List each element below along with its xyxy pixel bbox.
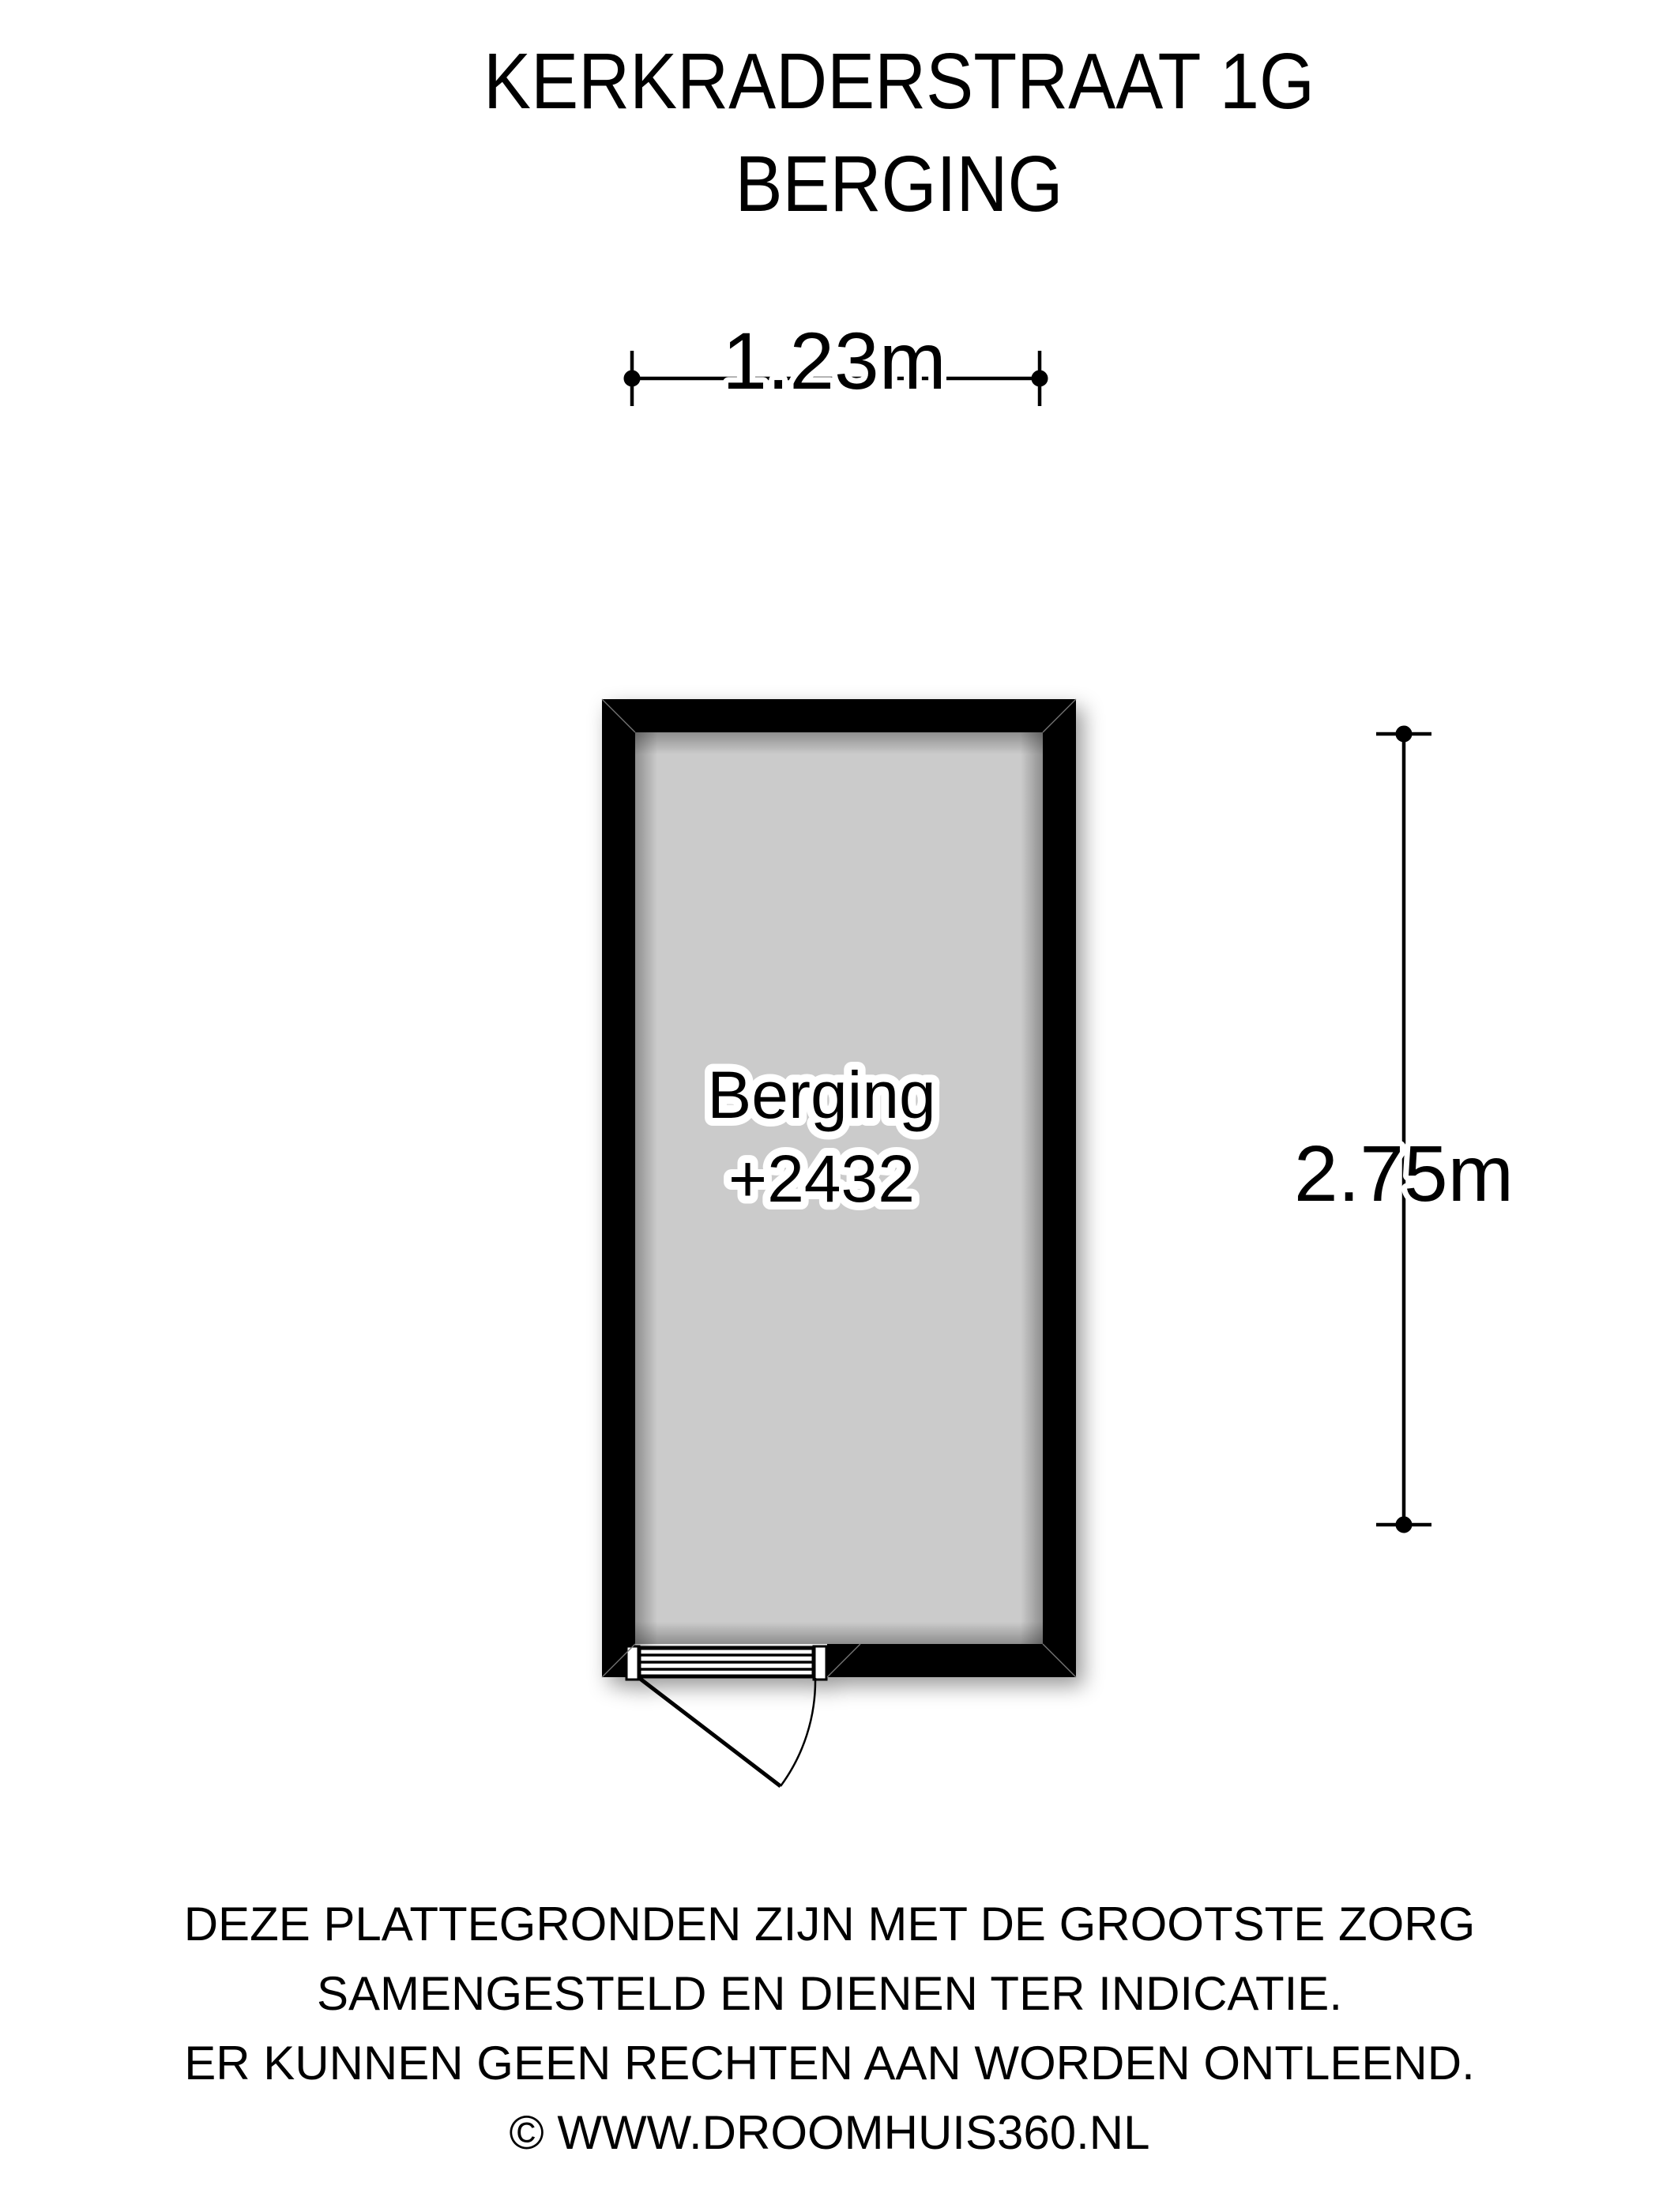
disclaimer-line: DEZE PLATTEGRONDEN ZIJN MET DE GROOTSTE …: [0, 1890, 1659, 1959]
dimension-endpoint-dot: [1396, 1517, 1412, 1533]
door-leaf: [639, 1678, 781, 1786]
disclaimer-line: ER KUNNEN GEEN RECHTEN AAN WORDEN ONTLEE…: [0, 2029, 1659, 2098]
width-dimension-label: 1.23m: [722, 316, 946, 406]
height-dimension-label: 2.75m: [1294, 1130, 1514, 1218]
dimension-endpoint-dot: [1032, 371, 1048, 386]
disclaimer-line: SAMENGESTELD EN DIENEN TER INDICATIE.: [0, 1959, 1659, 2029]
copyright-line: © WWW.DROOMHUIS360.NL: [0, 2098, 1659, 2168]
door-swing: [639, 1678, 815, 1786]
dimension-endpoint-dot: [624, 371, 640, 386]
disclaimer: DEZE PLATTEGRONDEN ZIJN MET DE GROOTSTE …: [0, 1890, 1659, 2168]
floorplan-drawing: 1.23m 2.75m Berging +2432: [0, 0, 1659, 2212]
room-code-label: +2432: [728, 1142, 915, 1216]
floorplan-page: KERKRADERSTRAAT 1G BERGING: [0, 0, 1659, 2212]
dimension-endpoint-dot: [1396, 726, 1412, 742]
door-arc: [781, 1678, 815, 1786]
room-name-label: Berging: [707, 1058, 936, 1132]
